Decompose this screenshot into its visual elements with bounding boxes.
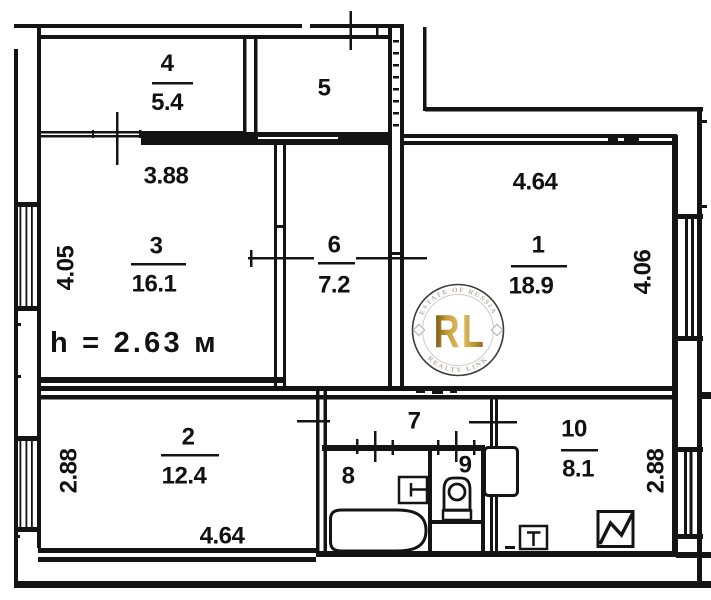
svg-text:4.06: 4.06 bbox=[630, 249, 657, 294]
svg-text:1: 1 bbox=[532, 232, 545, 259]
svg-text:4.64: 4.64 bbox=[513, 169, 559, 196]
svg-text:5.4: 5.4 bbox=[151, 89, 184, 116]
svg-text:2.88: 2.88 bbox=[643, 448, 670, 493]
svg-text:h = 2.63 м: h = 2.63 м bbox=[50, 327, 219, 359]
svg-text:18.9: 18.9 bbox=[509, 273, 554, 300]
svg-text:3: 3 bbox=[150, 233, 163, 260]
svg-text:2: 2 bbox=[182, 424, 195, 451]
svg-text:6: 6 bbox=[328, 232, 341, 259]
svg-text:3.88: 3.88 bbox=[144, 163, 189, 190]
svg-text:7.2: 7.2 bbox=[318, 272, 350, 299]
svg-text:8.1: 8.1 bbox=[562, 456, 594, 483]
svg-text:9: 9 bbox=[459, 452, 472, 479]
svg-text:10: 10 bbox=[561, 416, 587, 443]
svg-text:4.64: 4.64 bbox=[200, 523, 246, 550]
svg-text:4.05: 4.05 bbox=[53, 245, 80, 290]
svg-text:R: R bbox=[434, 306, 460, 357]
svg-text:7: 7 bbox=[408, 408, 421, 435]
svg-text:5: 5 bbox=[318, 75, 331, 102]
svg-text:16.1: 16.1 bbox=[132, 271, 177, 298]
svg-text:4: 4 bbox=[161, 50, 175, 77]
svg-text:12.4: 12.4 bbox=[162, 463, 208, 490]
svg-text:8: 8 bbox=[342, 463, 355, 490]
svg-text:L: L bbox=[462, 306, 484, 357]
svg-text:2.88: 2.88 bbox=[56, 448, 83, 493]
